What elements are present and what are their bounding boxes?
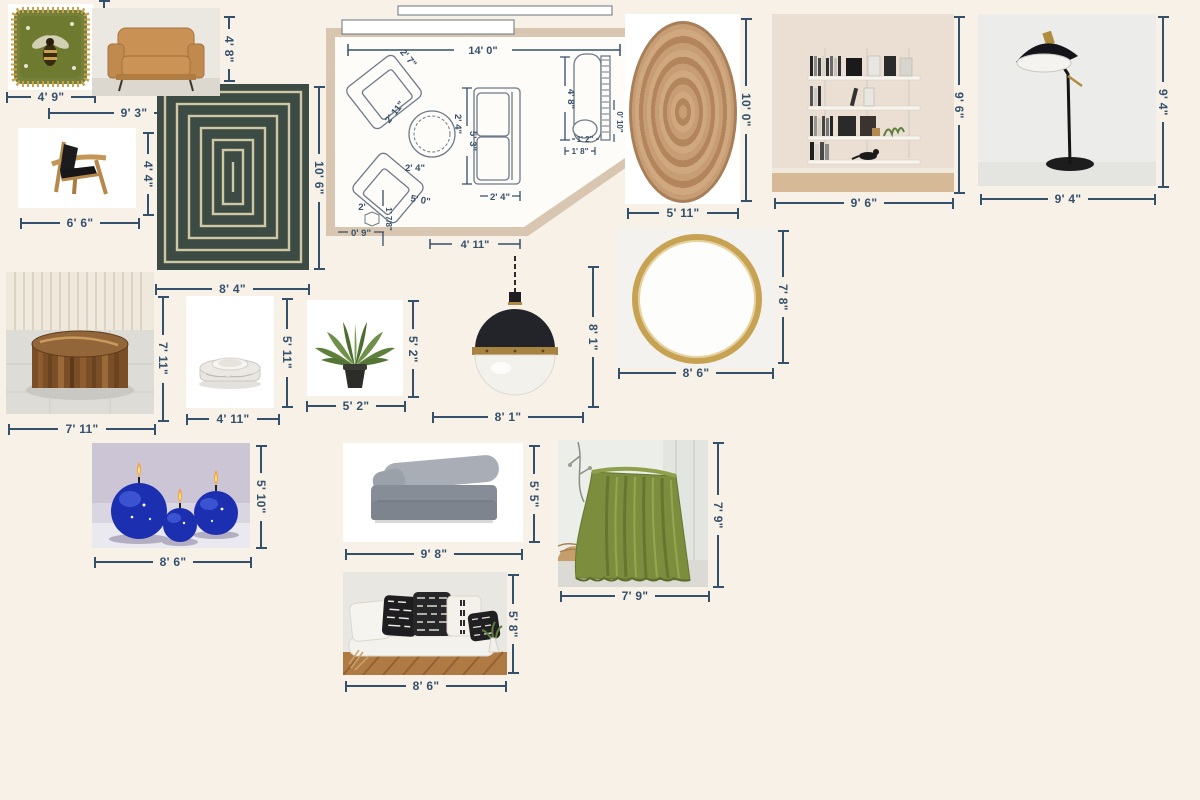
pendant-height-dim: 8' 1" <box>586 266 600 408</box>
plant-width-dim: 5' 2" <box>306 399 406 413</box>
marble-bowl-image[interactable] <box>186 296 274 408</box>
pillow-bench-height-dim: 5' 8" <box>506 574 520 674</box>
plan-room-width-label: 14' 0" <box>468 45 497 57</box>
plant-image[interactable] <box>307 300 403 396</box>
sling-chair-image[interactable] <box>18 128 136 208</box>
plant-illustration <box>307 300 403 396</box>
leather-armchair-illustration <box>92 8 220 96</box>
candles-height-dim: 5' 10" <box>254 445 268 549</box>
mirror-height-dim: 7' 8" <box>776 230 790 364</box>
jute-rug-illustration <box>629 21 737 203</box>
wall-shelf-height-dim: 9' 6" <box>952 16 966 194</box>
candles-width-dim: 8' 6" <box>94 555 252 569</box>
mirror-illustration <box>632 234 762 364</box>
bee-pillow-image[interactable] <box>8 4 93 90</box>
plan-bench-depth-label: 1' 2" <box>577 135 594 144</box>
candles-illustration <box>92 443 250 548</box>
plant-height-dim: 5' 2" <box>406 300 420 398</box>
moodboard-canvas: 4' 9" 4' 9" 9' 3" 4' 8" <box>0 0 1200 800</box>
green-rug-image[interactable] <box>157 84 309 270</box>
candles-image[interactable] <box>92 443 250 548</box>
plan-sofa-depth-label: 2' 4" <box>452 114 463 134</box>
plan-side-table-h-label: 1' 7/8" <box>384 207 393 231</box>
floor-plan-drawing: 14' 0" 2' 7" 2' 11" 2' 4" <box>322 0 640 252</box>
sofa-width-dim: 9' 8" <box>345 547 523 561</box>
jute-rug-height-dim: 10' 0" <box>739 18 753 202</box>
pillow-bench-width-dim: 8' 6" <box>345 679 507 693</box>
sling-chair-width-dim: 6' 6" <box>20 216 140 230</box>
sofa-image[interactable] <box>343 443 523 542</box>
jute-rug-image[interactable] <box>625 14 740 204</box>
pillow-bench-image[interactable] <box>343 572 507 675</box>
plan-side-table-w-label: 0' 9" <box>351 228 371 239</box>
sofa-illustration <box>343 443 523 542</box>
pillow-bench-illustration <box>343 572 507 675</box>
marble-bowl-illustration <box>186 296 274 408</box>
green-throw-image[interactable] <box>558 440 708 587</box>
floor-lamp-width-dim: 9' 4" <box>980 192 1156 206</box>
green-rug-illustration <box>157 84 309 270</box>
floor-lamp-illustration <box>978 14 1156 186</box>
plan-piano-length-label: 4' 8" <box>565 89 576 109</box>
plan-sofa-width-label: 2' 4" <box>490 192 510 203</box>
plan-chair-b-label: 2' 4" <box>405 163 425 174</box>
plan-side-table-label: 2' <box>358 202 366 213</box>
leather-armchair-image[interactable] <box>92 8 220 96</box>
green-throw-illustration <box>558 440 708 587</box>
plan-sofa-length-label: 5' 3" <box>467 131 478 151</box>
sofa-height-dim: 5' 5" <box>527 445 541 543</box>
pendant-light-image[interactable] <box>455 256 575 396</box>
plan-bottom-wall-label: 4' 11" <box>461 239 490 251</box>
mirror-width-dim: 8' 6" <box>618 366 774 380</box>
wall-shelf-image[interactable] <box>772 14 954 192</box>
bee-pillow-illustration <box>8 4 93 90</box>
armchair-height-dim: 4' 8" <box>222 16 236 82</box>
coffee-table-illustration <box>6 272 154 414</box>
green-throw-width-dim: 7' 9" <box>560 589 710 603</box>
floor-lamp-image[interactable] <box>978 14 1156 186</box>
pendant-width-dim: 8' 1" <box>432 410 584 424</box>
floor-plan[interactable]: 14' 0" 2' 7" 2' 11" 2' 4" <box>322 0 640 252</box>
green-throw-height-dim: 7' 9" <box>711 442 725 588</box>
jute-rug-width-dim: 5' 11" <box>627 206 739 220</box>
sling-chair-illustration <box>18 128 136 208</box>
plan-piano-depth-label: 0' 10" <box>615 111 624 132</box>
marble-bowl-width-dim: 4' 11" <box>186 412 280 426</box>
coffee-table-width-dim: 7' 11" <box>8 422 156 436</box>
pendant-light-illustration <box>455 256 575 396</box>
mirror-image[interactable] <box>618 228 776 368</box>
marble-bowl-height-dim: 5' 11" <box>280 298 294 408</box>
floor-lamp-height-dim: 9' 4" <box>1156 16 1170 188</box>
green-rug-width-dim: 8' 4" <box>155 282 310 296</box>
plan-bench-width-label: 1' 8" <box>572 147 589 156</box>
sling-chair-height-dim: 4' 4" <box>141 132 155 216</box>
wall-shelf-width-dim: 9' 6" <box>774 196 954 210</box>
bee-pillow-width-dim: 4' 9" <box>6 90 96 104</box>
coffee-table-image[interactable] <box>6 272 154 414</box>
coffee-table-height-dim: 7' 11" <box>156 296 170 422</box>
wall-shelf-illustration <box>772 14 954 192</box>
